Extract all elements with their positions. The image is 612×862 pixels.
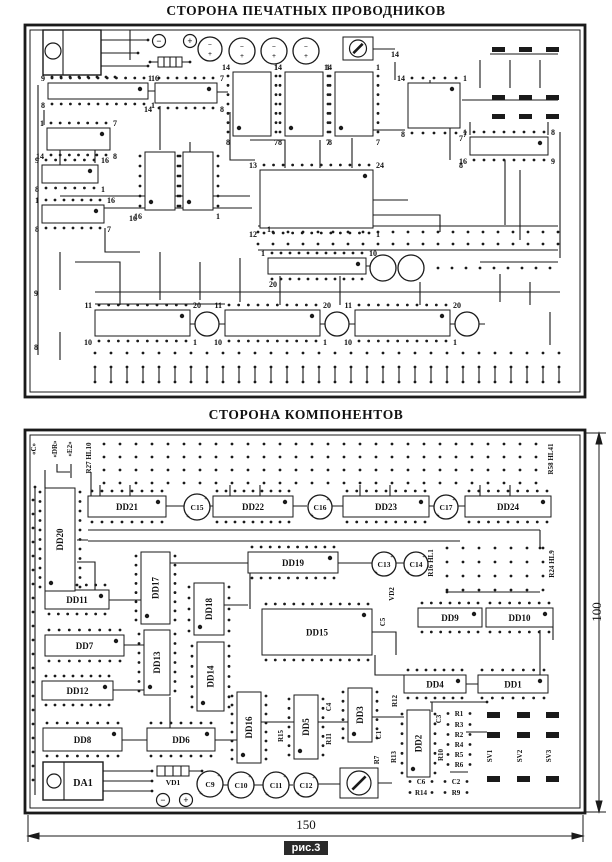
solder-dot [265,749,268,752]
solder-dot [46,755,49,758]
solder-dot [407,469,410,472]
solder-dot [32,779,35,782]
solder-dot [279,482,282,485]
solder-dot [119,469,122,472]
solder-dot [471,443,474,446]
solder-dot [174,600,177,603]
solder-dot [149,200,153,204]
solder-dot [174,381,177,384]
solder-dot [538,141,542,145]
capacitor [229,38,255,64]
ref-label: SV2 [516,749,524,762]
solder-dot [126,352,129,355]
solder-dot [101,521,104,524]
capacitor [370,255,396,281]
solder-dot [401,732,404,735]
pcb-figure: СТОРОНА ПЕЧАТНЫХ ПРОВОДНИКОВ СТОРОНА КОМ… [0,0,612,862]
solder-dot [257,304,260,307]
solder-dot [175,340,178,343]
solder-dot [135,469,138,472]
solder-dot [79,529,82,532]
solder-dot [352,278,355,281]
solder-dot [430,631,433,634]
solder-dot [32,625,35,628]
solder-dot [119,629,122,632]
pin-label: 8 [35,225,39,234]
solder-dot [206,381,209,384]
solder-dot [174,582,177,585]
pin-label: 16 [129,214,137,223]
solder-dot [497,521,500,524]
solder-dot [498,602,501,605]
solder-dot [422,132,425,135]
solder-dot [376,691,379,694]
solder-dot [119,660,122,663]
ic-label-DD4: DD4 [426,680,444,690]
solder-dot [288,521,291,524]
solder-dot [215,443,218,446]
solder-dot [377,304,380,307]
ic-label-DD12: DD12 [67,686,89,696]
solder-dot [93,187,96,190]
solder-dot [237,126,241,130]
solder-dot [435,340,438,343]
pin-label: 11 [84,301,92,310]
solder-dot [375,456,378,459]
solder-dot [487,490,490,493]
solder-dot [478,381,481,384]
solder-dot [549,267,552,270]
solder-dot [526,381,529,384]
solder-dot [137,52,140,55]
solder-dot [146,304,149,307]
solder-dot [342,700,345,703]
solder-dot [437,267,440,270]
solder-dot [32,765,35,768]
solder-dot [494,352,497,355]
ref-label: R6 [455,761,464,769]
solder-dot [541,500,545,504]
solder-dot [330,659,333,662]
solder-dot [51,103,54,106]
pin-label: 16 [101,156,109,165]
solder-dot [151,482,154,485]
solder-dot [68,660,71,663]
solder-dot [477,602,480,605]
ref-label: «C» [30,442,38,455]
solder-dot [325,278,328,281]
solder-dot [265,695,268,698]
solder-dot [59,122,62,125]
pin-label: 7 [113,119,117,128]
solder-dot [494,589,497,592]
solder-dot [266,340,269,343]
solder-dot [503,443,506,446]
solder-dot [105,122,108,125]
solder-dot [227,131,230,134]
solder-dot [54,199,57,202]
solder-dot [407,669,410,672]
solder-dot [425,669,428,672]
solder-dot [536,490,539,493]
solder-dot [526,366,529,369]
solder-dot [398,366,401,369]
solder-dot [271,252,274,255]
solder-dot [60,103,63,106]
solder-dot [227,84,230,87]
solder-dot [279,521,282,524]
solder-dot [358,164,361,167]
solder-dot [228,675,231,678]
solder-dot [375,443,378,446]
solder-dot [180,755,183,758]
solder-dot [133,77,136,80]
pin-label: 20 [453,301,461,310]
pin-label: 10 [214,338,222,347]
solder-dot [142,381,145,384]
solder-dot [298,252,301,255]
solder-dot [228,695,231,698]
solder-dot [247,482,250,485]
solder-dot [311,443,314,446]
solder-dot [501,669,504,672]
solder-dot [265,704,268,707]
solder-dot [107,340,110,343]
cap-label-C9: C9 [205,780,214,789]
solder-dot [68,122,71,125]
solder-dot [542,547,545,550]
solder-dot [272,164,275,167]
solder-dot [133,103,136,106]
ic-label-DD19: DD19 [282,558,304,568]
solder-dot [471,482,474,485]
solder-dot [177,155,180,158]
solder-dot [142,366,145,369]
solder-dot [227,75,230,78]
solder-dot [228,340,231,343]
solder-dot [257,231,260,234]
solder-dot [107,304,110,307]
solder-dot [450,87,454,91]
solder-dot [510,561,513,564]
solder-dot [190,381,193,384]
solder-dot [363,174,367,178]
solder-dot [558,352,561,355]
solder-dot [310,164,313,167]
solder-dot [215,482,218,485]
solder-dot [481,697,484,700]
solder-dot [424,490,427,493]
ic-label-DD6: DD6 [172,735,190,745]
pin-label: 7 [459,134,463,143]
solder-dot [279,443,282,446]
solder-dot [322,754,325,757]
ref-label: R10 [437,748,445,761]
pin-label: 8 [401,130,405,139]
solder-dot [228,655,231,658]
solder-dot [406,340,409,343]
pin-label: 1 [101,185,105,194]
solder-dot [543,159,546,162]
solder-dot [228,586,231,589]
solder-dot [265,722,268,725]
solder-dot [174,671,177,674]
solder-dot [528,602,531,605]
solder-dot [543,131,546,134]
solder-dot [497,243,500,246]
solder-dot [477,490,480,493]
solder-dot [401,722,404,725]
solder-dot [357,659,360,662]
solder-dot [462,381,465,384]
solder-dot [368,232,371,235]
solder-dot [288,716,291,719]
solder-dot [206,366,209,369]
solder-dot [392,243,395,246]
connector-pad [487,712,500,718]
solder-dot [327,443,330,446]
solder-dot [79,567,82,570]
solder-dot [302,659,305,662]
solder-dot [167,77,170,80]
solder-dot [322,716,325,719]
pin-label: 12 [249,230,257,239]
solder-dot [497,231,500,234]
solder-dot [343,456,346,459]
solder-dot [449,631,452,634]
solder-dot [291,232,294,235]
solder-dot [318,366,321,369]
ref-label: R58 HL41 [547,443,555,474]
solder-dot [156,500,160,504]
solder-dot [78,103,81,106]
solder-dot [263,482,266,485]
solder-dot [117,304,120,307]
solder-dot [261,521,264,524]
solder-dot [96,76,99,79]
ref-label: R14 [415,789,428,797]
solder-dot [64,187,67,190]
solder-dot [225,521,228,524]
ic-label-DD21: DD21 [116,502,138,512]
solder-dot [421,602,424,605]
solder-dot [96,755,99,758]
solder-dot [177,165,180,168]
terminal-sign: + [183,795,188,805]
solder-dot [39,586,42,589]
solder-dot [174,661,177,664]
ref-label: R27 HL10 [85,442,93,473]
solder-dot [69,103,72,106]
solder-dot [58,629,61,632]
solder-dot [478,589,481,592]
solder-dot [347,231,350,234]
solder-dot [95,122,98,125]
solder-dot [401,762,404,765]
solder-dot [50,122,53,125]
pin-label: 8 [41,101,45,110]
solder-dot [48,629,51,632]
solder-dot [447,712,450,715]
solder-dot [519,456,522,459]
solder-dot [366,381,369,384]
solder-dot [228,619,231,622]
solder-dot [215,469,218,472]
solder-dot [334,252,337,255]
solder-dot [191,695,194,698]
pin-label: 8 [113,152,117,161]
solder-dot [493,131,496,134]
solder-dot [339,164,342,167]
ic-label-DD16: DD16 [244,716,254,738]
ic-label-DD2: DD2 [414,734,424,752]
solder-dot [237,304,240,307]
solder-dot [518,602,521,605]
solder-dot [135,582,138,585]
solder-dot [188,619,191,622]
solder-dot [455,456,458,459]
solder-dot [45,675,48,678]
solder-dot [330,603,333,606]
solder-dot [433,132,436,135]
solder-dot [279,490,282,493]
solder-dot [310,314,314,318]
pin-label: 20 [193,301,201,310]
solder-dot [510,381,513,384]
solder-dot [343,252,346,255]
cap-label-C10: C10 [235,781,248,790]
solder-dot [119,456,122,459]
pin-label: + [452,497,456,503]
solder-dot [275,103,278,106]
solder-dot [56,722,59,725]
solder-dot [424,521,427,524]
solder-dot [283,659,286,662]
solder-dot [375,482,378,485]
solder-dot [501,697,504,700]
ref-label: C2 [452,778,461,786]
solder-dot [542,561,545,564]
solder-dot [350,366,353,369]
solder-dot [469,723,472,726]
ic-label-DD14: DD14 [206,665,216,687]
solder-dot [508,602,511,605]
solder-dot [45,704,48,707]
ref-label: R4 [455,741,464,749]
solder-dot [465,267,468,270]
solder-dot [63,675,66,678]
pin-label: 14 [274,63,282,72]
solder-dot [231,749,234,752]
solder-dot [519,469,522,472]
solder-dot [401,742,404,745]
ic-label-DD3: DD3 [355,706,365,724]
solder-dot [406,304,409,307]
solder-dot [231,713,234,716]
solder-dot [275,75,278,78]
solder-dot [275,121,278,124]
solder-dot [542,352,545,355]
solder-dot [276,304,279,307]
solder-dot [174,642,177,645]
solder-dot [315,340,318,343]
solder-dot [359,456,362,459]
solder-dot [54,227,57,230]
solder-dot [139,155,142,158]
solder-dot [135,456,138,459]
solder-dot [359,469,362,472]
solder-dot [289,252,292,255]
solder-dot [407,243,410,246]
connector-pad [517,776,530,782]
solder-dot [332,243,335,246]
solder-dot [455,443,458,446]
ic-label-DD1: DD1 [504,680,522,690]
ref-label: R11 [325,733,333,745]
solder-dot [39,538,42,541]
solder-dot [174,564,177,567]
solder-dot [471,469,474,472]
solder-dot [32,611,35,614]
solder-dot [394,521,397,524]
solder-dot [329,121,332,124]
solder-dot [512,669,515,672]
solder-dot [407,482,410,485]
solder-dot [32,695,35,698]
solder-dot [94,366,97,369]
solder-dot [416,340,419,343]
solder-dot [191,706,194,709]
solder-dot [296,546,299,549]
pin-label: 14 [222,63,230,72]
pin-label: + [186,514,190,520]
solder-dot [315,304,318,307]
ic-footprint [42,165,98,183]
solder-dot [382,352,385,355]
solder-dot [270,352,273,355]
solder-dot [76,755,79,758]
ref-label: SV3 [545,749,553,762]
solder-dot [323,577,326,580]
solder-dot [108,704,111,707]
solder-dot [199,456,202,459]
solder-dot [174,591,177,594]
solder-dot [334,352,337,355]
solder-dot [222,352,225,355]
solder-dot [185,304,188,307]
solder-dot [376,700,379,703]
pin-label: − [272,43,276,51]
solder-dot [513,131,516,134]
solder-dot [558,366,561,369]
cap-label-C13: C13 [378,560,391,569]
solder-dot [287,546,290,549]
solder-dot [270,381,273,384]
solder-dot [177,195,180,198]
solder-dot [311,603,314,606]
solder-dot [141,490,144,493]
solder-dot [512,697,515,700]
pin-label: 8 [226,138,230,147]
solder-dot [265,713,268,716]
solder-dot [135,443,138,446]
pin-label: + [272,52,276,60]
solder-dot [443,669,446,672]
solder-dot [158,366,161,369]
solder-dot [422,231,425,234]
solder-dot [280,278,283,281]
solder-dot [39,576,42,579]
